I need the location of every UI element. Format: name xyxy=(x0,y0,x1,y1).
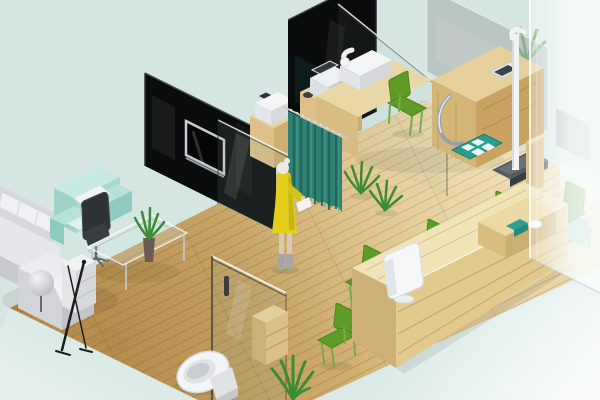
scene-svg xyxy=(0,0,600,400)
frosted-wall xyxy=(530,0,600,293)
boot-right xyxy=(286,254,294,269)
scene xyxy=(0,0,600,400)
wood-shelf xyxy=(252,305,288,365)
boot-left xyxy=(277,254,285,269)
door-handle xyxy=(224,276,229,296)
